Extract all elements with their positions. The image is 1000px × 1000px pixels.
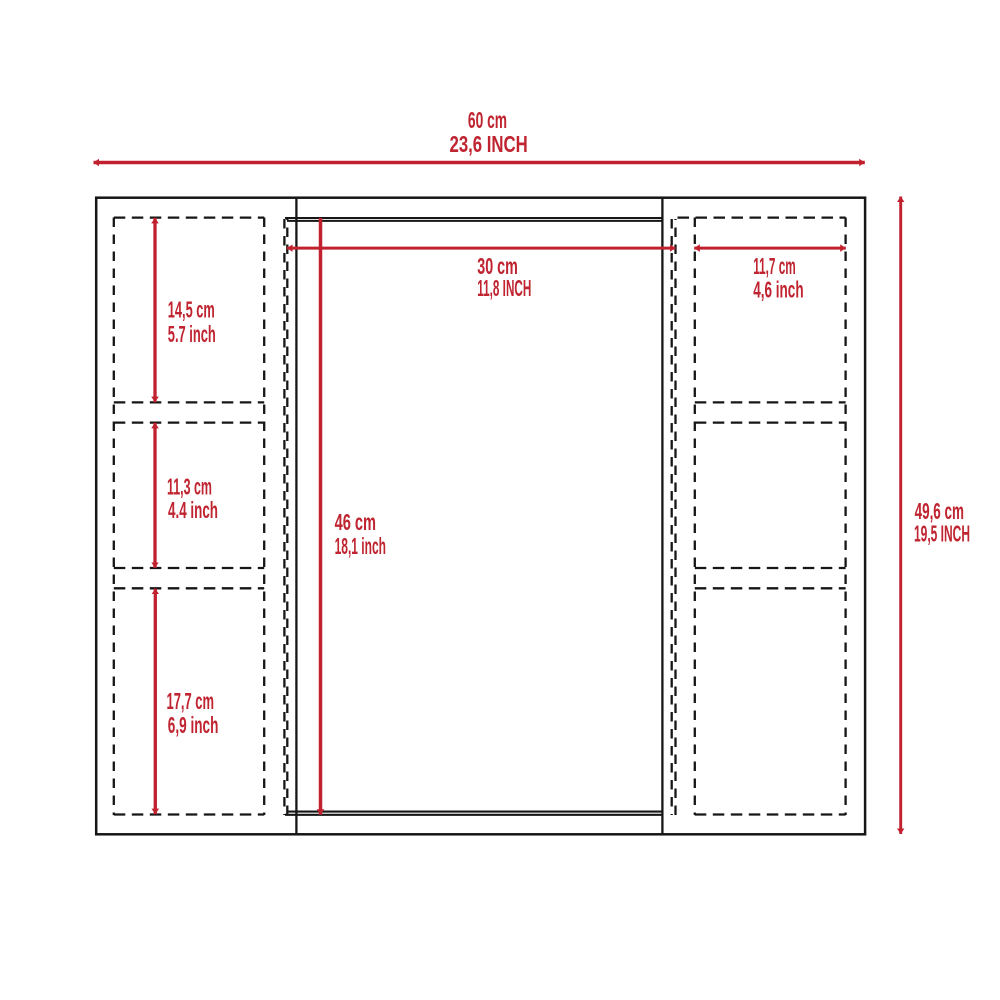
svg-text:18,1 inch: 18,1 inch: [335, 533, 386, 559]
svg-text:4.4 inch: 4.4 inch: [168, 497, 218, 523]
svg-text:11,8 INCH: 11,8 INCH: [477, 275, 531, 301]
svg-text:11,7 cm: 11,7 cm: [753, 253, 796, 279]
svg-text:14,5 cm: 14,5 cm: [168, 297, 215, 323]
svg-text:19,5 INCH: 19,5 INCH: [914, 521, 970, 547]
svg-text:17,7 cm: 17,7 cm: [167, 688, 215, 714]
svg-text:5.7 inch: 5.7 inch: [168, 321, 216, 347]
svg-text:60 cm: 60 cm: [468, 107, 507, 133]
svg-text:23,6 INCH: 23,6 INCH: [450, 131, 528, 157]
svg-text:46 cm: 46 cm: [335, 509, 376, 535]
svg-text:11,3 cm: 11,3 cm: [167, 473, 212, 499]
svg-text:6,9 inch: 6,9 inch: [168, 712, 219, 738]
svg-text:4,6 inch: 4,6 inch: [753, 276, 803, 302]
